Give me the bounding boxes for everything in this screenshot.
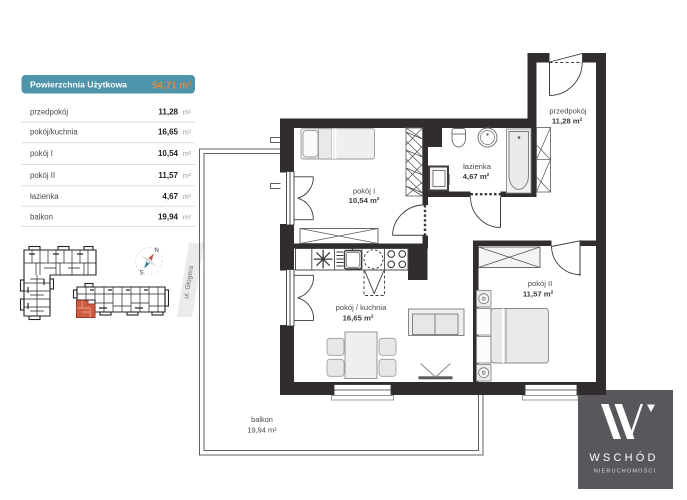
svg-text:NIERUCHOMOŚCI: NIERUCHOMOŚCI: [594, 467, 656, 475]
svg-text:11,57 m²: 11,57 m²: [523, 290, 554, 299]
svg-text:4,67 m²: 4,67 m²: [463, 172, 490, 181]
svg-text:11,28: 11,28: [158, 108, 178, 117]
svg-text:pokój/kuchnia: pokój/kuchnia: [30, 128, 78, 137]
svg-text:S: S: [140, 271, 144, 277]
svg-text:19,94 m²: 19,94 m²: [247, 426, 277, 435]
svg-text:m²: m²: [183, 194, 192, 201]
svg-text:pokój I: pokój I: [30, 149, 53, 158]
svg-text:pokój I: pokój I: [353, 187, 375, 196]
svg-text:11,57: 11,57: [158, 171, 178, 180]
svg-text:przedpokój: przedpokój: [30, 108, 68, 117]
svg-text:19,94: 19,94: [158, 213, 179, 222]
svg-text:m²: m²: [183, 130, 192, 137]
svg-text:przedpokój: przedpokój: [549, 107, 586, 116]
svg-text:pokój II: pokój II: [528, 279, 552, 288]
svg-text:Powierzchnia Użytkowa: Powierzchnia Użytkowa: [30, 80, 127, 90]
svg-text:pokój II: pokój II: [30, 171, 55, 180]
svg-text:16,65 m²: 16,65 m²: [343, 314, 374, 323]
svg-text:10,54 m²: 10,54 m²: [349, 196, 380, 205]
svg-text:m²: m²: [183, 110, 192, 117]
svg-text:10,54: 10,54: [158, 149, 179, 158]
svg-text:11,28 m²: 11,28 m²: [552, 117, 583, 126]
svg-text:m²: m²: [183, 215, 192, 222]
svg-text:m²: m²: [183, 151, 192, 158]
svg-text:4,67: 4,67: [162, 192, 178, 201]
svg-text:łazienka: łazienka: [463, 162, 492, 171]
svg-text:WSCHÓD: WSCHÓD: [589, 451, 658, 464]
svg-text:54,71 m²: 54,71 m²: [152, 81, 192, 92]
svg-text:łazienka: łazienka: [30, 192, 59, 201]
svg-text:pokój / kuchnia: pokój / kuchnia: [336, 303, 387, 312]
svg-text:m²: m²: [183, 173, 192, 180]
svg-text:balkon: balkon: [30, 213, 53, 222]
svg-text:16,65: 16,65: [158, 128, 179, 137]
svg-text:N: N: [155, 248, 159, 254]
svg-text:balkon: balkon: [251, 415, 273, 424]
